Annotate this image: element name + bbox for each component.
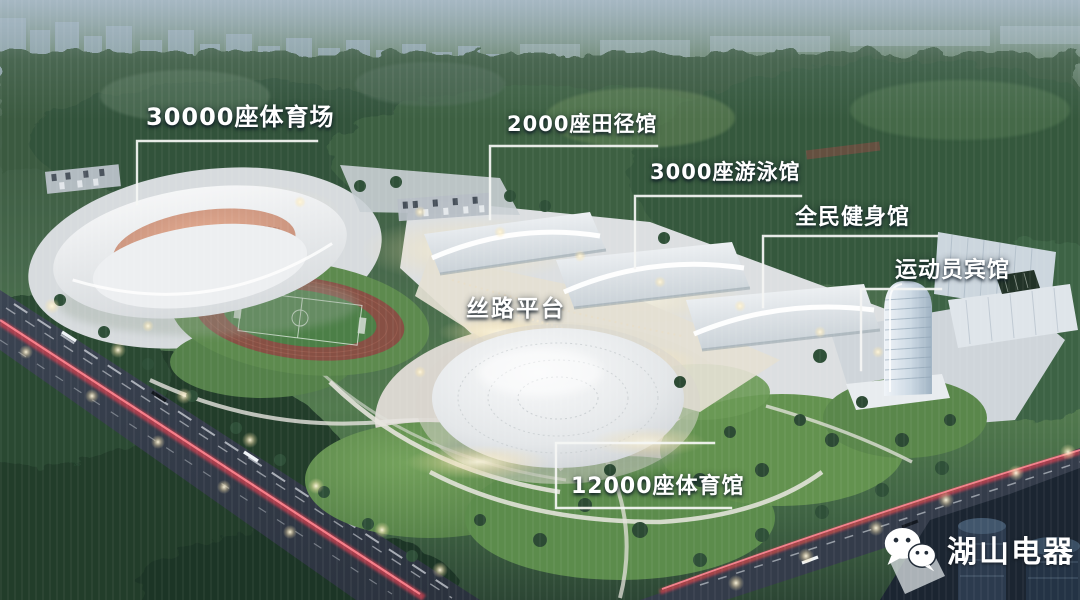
label-athlete-hotel: 运动员宾馆 [895, 259, 1010, 283]
aerial-rendering: 30000座体育场 2000座田径馆 3000座游泳馆 全民健身馆 运动员宾馆 … [0, 0, 1080, 600]
label-gymnasium: 12000座体育馆 [571, 475, 745, 499]
label-fitness-hall: 全民健身馆 [795, 206, 910, 230]
label-athletics-hall: 2000座田径馆 [507, 113, 657, 136]
label-stadium: 30000座体育场 [146, 104, 335, 130]
watermark: 湖山电器 [882, 525, 1075, 573]
label-swimming-hall: 3000座游泳馆 [650, 161, 800, 184]
label-silk-road-platform: 丝路平台 [466, 297, 566, 322]
wechat-icon [882, 525, 938, 573]
watermark-brand: 湖山电器 [947, 527, 1075, 571]
